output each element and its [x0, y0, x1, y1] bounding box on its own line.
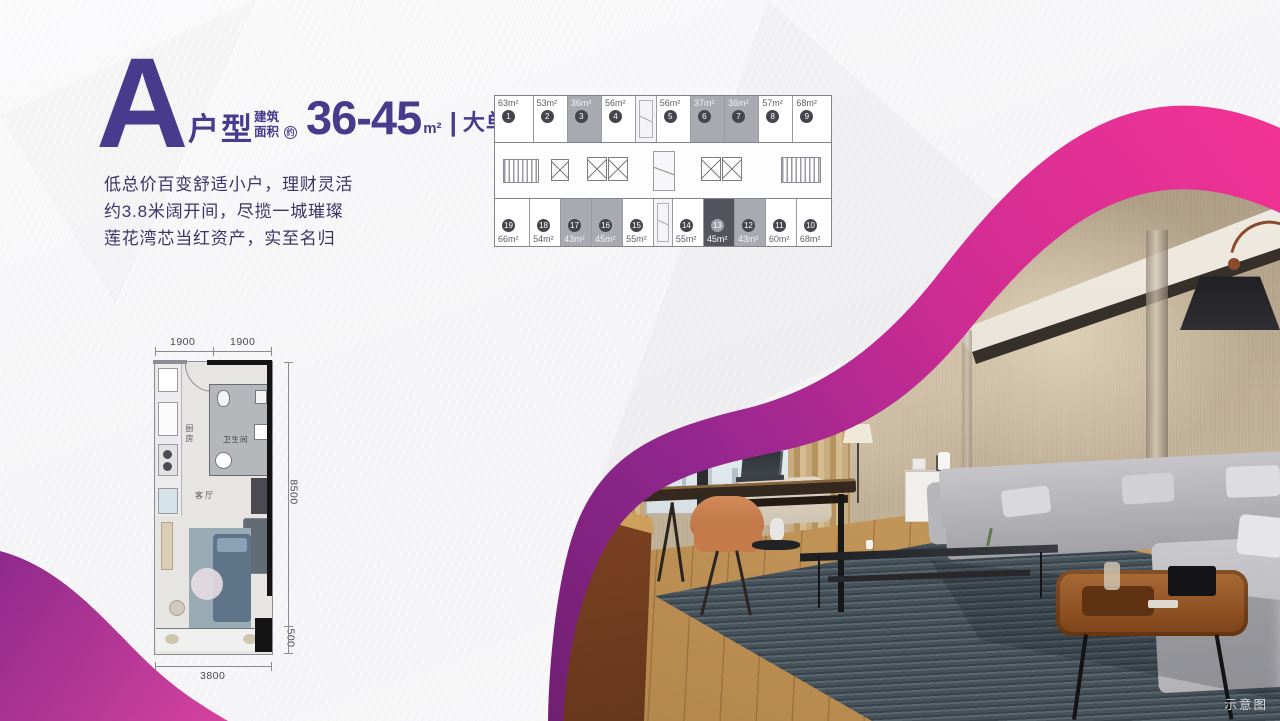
- round-rug: [191, 568, 223, 600]
- unit-cell: 1068m²: [797, 199, 831, 246]
- unit-number-badge: 3: [575, 110, 588, 123]
- unit-area-label: 60m²: [769, 234, 790, 244]
- unit-cell: 1160m²: [766, 199, 797, 246]
- wall: [255, 618, 272, 652]
- coffee-table-leg: [1040, 552, 1042, 598]
- curtain-left: [610, 360, 648, 522]
- plant-leaf: [657, 398, 675, 410]
- unit-cell: 1345m²: [704, 199, 735, 246]
- plant-leaf: [647, 419, 661, 433]
- unit-number-badge: 17: [568, 219, 581, 232]
- unit-area-label: 57m²: [762, 98, 783, 108]
- area-label-line1: 建筑: [254, 110, 279, 125]
- unit-number-badge: 14: [680, 219, 693, 232]
- chair-seat: [694, 522, 762, 552]
- unit-area-label: 54m²: [533, 234, 554, 244]
- unit-number-badge: 12: [742, 219, 755, 232]
- dim-tick: [271, 347, 272, 356]
- dim-line: [155, 666, 272, 667]
- unit-number-badge: 10: [804, 219, 817, 232]
- elevator-icon: [722, 157, 742, 181]
- stove-burner: [163, 462, 172, 471]
- unit-type-label: 户型: [188, 104, 254, 149]
- area-label: 建筑 面积: [254, 110, 279, 140]
- unit-area-label: 66m²: [498, 234, 519, 244]
- unit-area-label: 45m²: [595, 234, 616, 244]
- description-line-2: 约3.8米阔开间，尽揽一城璀璨: [104, 197, 344, 222]
- dim-line: [288, 626, 289, 653]
- unit-number-badge: 6: [698, 110, 711, 123]
- unit-number-badge: 13: [711, 219, 724, 232]
- dim-top-right: 1900: [230, 336, 255, 348]
- bench: [161, 522, 173, 570]
- kitchen-sink: [158, 368, 178, 392]
- side-table-small: [752, 540, 800, 550]
- floor-lamp-icon: [843, 424, 873, 443]
- plate-shaft-cell: [636, 96, 657, 142]
- glass-jar: [1104, 562, 1120, 590]
- unit-cell: 1966m²: [495, 199, 530, 246]
- unit-cell: 57m²8: [759, 96, 793, 142]
- unit-number-badge: 11: [773, 219, 786, 232]
- dim-tick: [284, 653, 293, 654]
- balcony-plant: [165, 634, 179, 644]
- watermark-label: 示意图: [1224, 694, 1268, 713]
- page: A 户型 建筑 面积 约 36-45 m² | 大单间 低总价百变舒适小户，理财…: [0, 0, 1280, 721]
- elevator-icon: [608, 157, 628, 181]
- unit-area-label: 56m²: [660, 98, 681, 108]
- floor-plate-corridor: [495, 142, 831, 199]
- vase: [652, 442, 667, 478]
- dim-tick: [271, 662, 272, 671]
- kitchen-stove: [158, 444, 178, 476]
- black-box: [1168, 566, 1216, 596]
- plant-leaf: [573, 460, 589, 472]
- stairs-icon: [781, 157, 821, 183]
- unit-cell: 36m²7: [725, 96, 759, 142]
- unit-cell: 63m²1: [495, 96, 534, 142]
- teacup: [866, 540, 873, 549]
- unit-number-badge: 15: [630, 219, 643, 232]
- unit-number-badge: 7: [732, 110, 745, 123]
- unit-area-label: 63m²: [498, 98, 519, 108]
- stove-burner: [163, 450, 172, 459]
- unit-area-label: 68m²: [796, 98, 817, 108]
- unit-number-badge: 8: [766, 110, 779, 123]
- unit-area-label: 43m²: [738, 234, 759, 244]
- coffee-table-leg: [818, 556, 820, 608]
- unit-area-label: 68m²: [800, 234, 821, 244]
- floor-plan-body: 厨房 卫生间 客厅: [155, 362, 272, 654]
- area-value: 36-45: [306, 96, 421, 140]
- unit-cell: 1243m²: [735, 199, 766, 246]
- area-approx-badge: 约: [284, 126, 297, 139]
- plant-leaf: [639, 406, 655, 418]
- dim-tick: [155, 347, 156, 356]
- unit-area-label: 56m²: [605, 98, 626, 108]
- dim-right-bottom: 500: [285, 628, 297, 647]
- shower: [215, 452, 232, 469]
- sofa-pillow: [1121, 472, 1175, 505]
- unit-cell: 53m²2: [534, 96, 568, 142]
- dim-right: 8500: [288, 479, 300, 504]
- wall: [207, 360, 272, 365]
- unit-area-label: 43m²: [564, 234, 585, 244]
- dim-bottom: 3800: [200, 670, 225, 682]
- unit-number-badge: 18: [537, 219, 550, 232]
- description-line-1: 低总价百变舒适小户，理财灵活: [104, 170, 353, 195]
- unit-number-badge: 16: [599, 219, 612, 232]
- sofa-pillow: [1225, 465, 1280, 498]
- unit-number-badge: 4: [609, 110, 622, 123]
- dim-top-left: 1900: [170, 336, 195, 348]
- unit-area-label: 36m²: [571, 98, 592, 108]
- unit-number-badge: 2: [541, 110, 554, 123]
- bath-cabinet: [255, 390, 267, 404]
- washbasin: [254, 424, 268, 440]
- unit-cell: 1743m²: [561, 199, 592, 246]
- unit-cell: 1854m²: [530, 199, 561, 246]
- dim-tick: [155, 662, 156, 671]
- floor-plan: 1900 1900 厨房 卫生间 客厅: [148, 336, 308, 686]
- kitchen-fridge: [158, 488, 178, 514]
- unit-number-badge: 1: [502, 110, 515, 123]
- unit-area-label: 53m²: [537, 98, 558, 108]
- card: [1148, 600, 1178, 608]
- unit-type-letter: A: [96, 40, 186, 168]
- kitchen-counter: [158, 402, 178, 436]
- floor-plate-top-row: 63m²153m²236m²356m²456m²537m²636m²757m²8…: [495, 96, 831, 142]
- unit-cell: 37m²6: [691, 96, 725, 142]
- room-label-bath: 卫生间: [223, 434, 249, 445]
- unit-number-badge: 9: [800, 110, 813, 123]
- elevator-icon: [701, 157, 721, 181]
- area-label-line2: 面积: [254, 125, 279, 140]
- unit-cell: 1555m²: [623, 199, 654, 246]
- tissue-box: [912, 458, 926, 470]
- unit-area-label: 36m²: [728, 98, 749, 108]
- unit-cell: 56m²5: [657, 96, 691, 142]
- table-tray: [1082, 586, 1154, 616]
- plate-shaft-cell: [654, 199, 673, 246]
- unit-area-label: 45m²: [707, 234, 728, 244]
- description-line-3: 莲花湾芯当红资产，实至名归: [104, 224, 335, 249]
- unit-cell: 36m²3: [568, 96, 602, 142]
- desk-lamp-arm: [690, 430, 760, 454]
- sofa-pillow: [1236, 514, 1280, 559]
- plant-leaf: [559, 467, 577, 482]
- unit-number-badge: 19: [502, 219, 515, 232]
- unit-cell: 56m²4: [602, 96, 636, 142]
- central-shaft: [653, 151, 675, 191]
- lamp-joint: [1228, 258, 1240, 270]
- room-label-living: 客厅: [195, 490, 215, 501]
- unit-cell: 68m²9: [793, 96, 831, 142]
- area-unit: m²: [423, 120, 441, 137]
- floor-lamp-stem: [857, 443, 859, 503]
- kettle-icon: [938, 452, 950, 470]
- white-vase: [770, 518, 784, 540]
- room-label-kitchen: 厨房: [184, 424, 195, 444]
- unit-area-label: 55m²: [626, 234, 647, 244]
- stairs-icon: [503, 159, 539, 183]
- unit-cell: 1645m²: [592, 199, 623, 246]
- unit-area-label: 37m²: [694, 98, 715, 108]
- stool: [169, 600, 185, 616]
- unit-cell: 1455m²: [673, 199, 704, 246]
- dim-tick: [284, 362, 293, 363]
- plant-leaf: [671, 410, 688, 425]
- floor-plate-bottom-row: 1966m²1854m²1743m²1645m²1555m²1455m²1345…: [495, 199, 831, 246]
- unit-area-label: 55m²: [676, 234, 697, 244]
- toilet: [217, 390, 230, 407]
- elevator-icon: [551, 159, 569, 181]
- wall: [267, 360, 272, 596]
- area-divider: |: [450, 107, 457, 138]
- unit-number-badge: 5: [664, 110, 677, 123]
- floor-plate-diagram: 63m²153m²236m²356m²456m²537m²636m²757m²8…: [494, 95, 832, 247]
- wall: [153, 360, 187, 364]
- bed-pillow: [217, 538, 247, 552]
- dim-tick: [213, 347, 214, 356]
- elevator-icon: [587, 157, 607, 181]
